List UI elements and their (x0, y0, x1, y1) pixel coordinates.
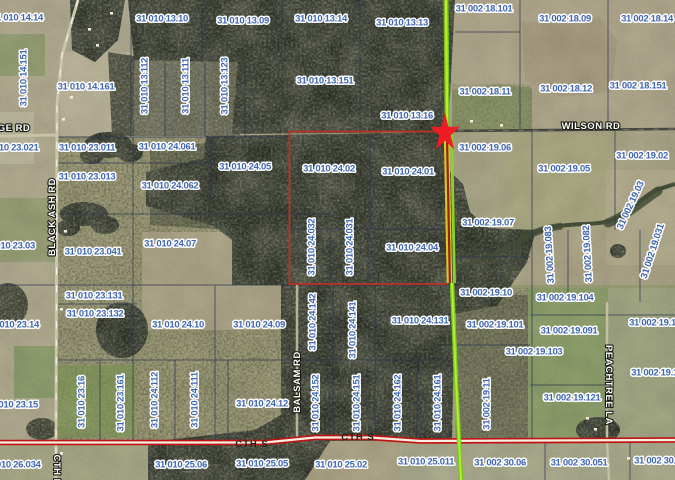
svg-text:31 010 24.01: 31 010 24.01 (382, 166, 435, 177)
svg-text:31 002 19.10: 31 002 19.10 (460, 287, 512, 298)
svg-text:31 002 19.091: 31 002 19.091 (541, 325, 599, 336)
svg-text:31 002 18.11: 31 002 18.11 (459, 86, 511, 97)
svg-text:PEACHTREE LA: PEACHTREE LA (603, 345, 614, 425)
svg-text:31 010 14.14: 31 010 14.14 (0, 12, 44, 23)
svg-text:31 002 30.04: 31 002 30.04 (634, 455, 675, 466)
svg-text:31 010 13.09: 31 010 13.09 (217, 15, 269, 26)
svg-text:31 010 23.041: 31 010 23.041 (65, 246, 123, 257)
svg-text:31 010 24.061: 31 010 24.061 (139, 141, 197, 152)
svg-text:31 010 13.151: 31 010 13.151 (297, 75, 355, 86)
svg-text:31 010 24.131: 31 010 24.131 (392, 315, 450, 326)
svg-text:31 002 18.101: 31 002 18.101 (456, 3, 514, 14)
svg-text:31 002 19.06: 31 002 19.06 (459, 142, 511, 153)
svg-text:31 010 23.013: 31 010 23.013 (59, 171, 116, 182)
svg-text:WILSON RD: WILSON RD (562, 121, 621, 132)
svg-text:31 010 24.062: 31 010 24.062 (142, 180, 199, 191)
svg-text:31 002 19.05: 31 002 19.05 (538, 163, 591, 174)
svg-text:31 010 26.034: 31 010 26.034 (0, 459, 41, 470)
svg-text:31 010 24.151: 31 010 24.151 (351, 374, 362, 432)
svg-text:CTH S: CTH S (341, 432, 375, 443)
svg-text:31 010 23.14: 31 010 23.14 (0, 319, 40, 330)
svg-text:31 010 13.16: 31 010 13.16 (381, 110, 433, 121)
svg-text:31 002 19.14: 31 002 19.14 (629, 317, 675, 328)
svg-text:31 010 24.162: 31 010 24.162 (392, 375, 403, 432)
svg-text:31 010 25.02: 31 010 25.02 (315, 459, 367, 470)
svg-text:BLACK ASH RD: BLACK ASH RD (47, 178, 58, 256)
svg-text:31 010 24.05: 31 010 24.05 (219, 161, 272, 172)
svg-text:CTH P: CTH P (51, 455, 62, 480)
svg-text:31 010 13.14: 31 010 13.14 (295, 13, 348, 24)
svg-text:31 010 24.141: 31 010 24.141 (347, 301, 358, 359)
svg-text:31 010 13.123: 31 010 13.123 (219, 58, 230, 115)
svg-text:31 010 23.15: 31 010 23.15 (0, 399, 39, 410)
svg-text:31 010 23.131: 31 010 23.131 (66, 290, 124, 301)
svg-text:31 010 13.112: 31 010 13.112 (139, 58, 150, 114)
svg-text:31 002 19.02: 31 002 19.02 (616, 150, 668, 161)
svg-text:31 010 13.111: 31 010 13.111 (180, 57, 191, 114)
svg-text:31 002 18.09: 31 002 18.09 (539, 13, 591, 24)
svg-text:31 010 24.161: 31 010 24.161 (432, 374, 443, 432)
svg-text:31 010 24.111: 31 010 24.111 (189, 371, 200, 428)
svg-text:31 010 14.151: 31 010 14.151 (18, 49, 29, 107)
svg-text:31 002 30.06: 31 002 30.06 (474, 457, 526, 468)
svg-text:31 010 25.011: 31 010 25.011 (398, 456, 455, 467)
svg-text:31 010 24.07: 31 010 24.07 (144, 238, 196, 249)
svg-text:31 010 14.161: 31 010 14.161 (58, 81, 116, 92)
svg-text:31 002 19.101: 31 002 19.101 (467, 319, 525, 330)
svg-text:31 002 18.14: 31 002 18.14 (621, 13, 674, 24)
svg-text:CTH S: CTH S (235, 439, 269, 450)
svg-text:31 002 19.103: 31 002 19.103 (506, 346, 563, 357)
svg-text:31 010 23.16: 31 010 23.16 (76, 376, 87, 428)
svg-text:31 010 24.10: 31 010 24.10 (152, 319, 204, 330)
svg-text:31 010 24.09: 31 010 24.09 (233, 319, 285, 330)
svg-text:31 002 19.11: 31 002 19.11 (481, 377, 492, 429)
svg-text:31 010 24.12: 31 010 24.12 (236, 398, 288, 409)
svg-text:31 010 24.04: 31 010 24.04 (386, 242, 439, 253)
svg-text:GE RD: GE RD (0, 123, 30, 134)
svg-text:31 002 19.121: 31 002 19.121 (544, 392, 602, 403)
svg-text:31 010 24.031: 31 010 24.031 (344, 218, 355, 276)
svg-text:31 010 23.011: 31 010 23.011 (59, 142, 116, 153)
svg-text:31 010 24.032: 31 010 24.032 (306, 219, 317, 276)
svg-text:31 010 23.132: 31 010 23.132 (67, 308, 124, 319)
svg-text:31 010 24.152: 31 010 24.152 (310, 375, 321, 432)
svg-text:31 002 18.12: 31 002 18.12 (540, 83, 592, 94)
svg-text:BALSAM RD: BALSAM RD (292, 351, 303, 413)
svg-text:31 010 24.112: 31 010 24.112 (149, 372, 160, 428)
svg-text:31 010 25.06: 31 010 25.06 (155, 459, 207, 470)
svg-text:31 010 23.03: 31 010 23.03 (0, 240, 35, 251)
svg-text:31 010 24.02: 31 010 24.02 (303, 163, 355, 174)
svg-text:31 010 24.142: 31 010 24.142 (307, 294, 318, 351)
svg-text:31 002 19.15: 31 002 19.15 (631, 367, 675, 378)
svg-text:31 010 23.161: 31 010 23.161 (115, 374, 126, 432)
svg-text:31 002 19.104: 31 002 19.104 (537, 292, 595, 303)
svg-text:31 002 30.051: 31 002 30.051 (551, 457, 609, 468)
svg-text:31 010 25.05: 31 010 25.05 (236, 458, 289, 469)
svg-text:31 002 18.151: 31 002 18.151 (610, 80, 668, 91)
svg-text:31 010 13.13: 31 010 13.13 (376, 17, 428, 28)
svg-text:31 010 23.021: 31 010 23.021 (0, 142, 39, 153)
svg-text:31 010 13.10: 31 010 13.10 (136, 13, 188, 24)
svg-text:31 002 19.07: 31 002 19.07 (462, 217, 514, 228)
